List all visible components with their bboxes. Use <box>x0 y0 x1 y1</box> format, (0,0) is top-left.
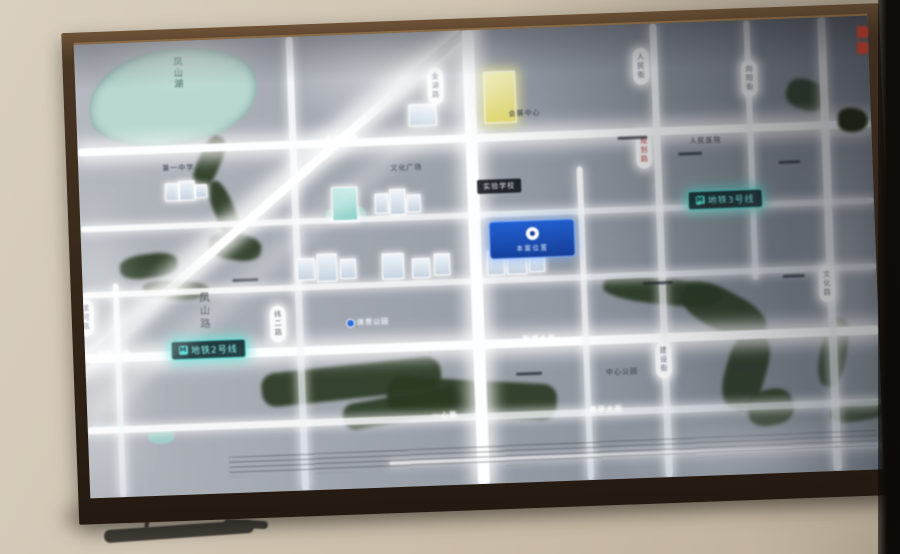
road-vertical-name-label: 凤山路 <box>195 292 211 332</box>
road-sign-pill: 建设街 <box>655 341 672 379</box>
road-sign-pill: 向阳街 <box>741 60 758 98</box>
text-smudge <box>516 372 542 376</box>
road-name-label: 新城大街 <box>523 333 557 344</box>
lake-shape <box>81 35 265 158</box>
building-icon <box>195 184 208 198</box>
text-smudge <box>678 152 702 156</box>
text-smudge <box>232 278 258 282</box>
poi-label-park: 体育公园 <box>346 316 389 328</box>
project-marker: 本案位置 <box>488 218 575 259</box>
poi-label: 商业中心 <box>734 362 766 373</box>
photo-of-illuminated-map-board: 金湖路 人民街 向阳街 规划路 纬二路 建设街 滨河路 文化路 M 地铁2号线 … <box>0 0 900 554</box>
poi-label: 中心公园 <box>606 366 638 377</box>
poi-label-dark-box: 实验学校 <box>477 178 521 194</box>
park-logo-icon <box>346 318 355 327</box>
building-icon <box>382 253 405 280</box>
road-sign-pill: 人民街 <box>632 48 649 86</box>
building-icon <box>317 253 338 282</box>
road-name-label: 一心路 <box>432 410 458 421</box>
building-icon <box>408 103 437 126</box>
poi-label: 文化广场 <box>390 162 422 173</box>
poi-label: 人民医院 <box>689 135 721 146</box>
bottom-pinstripes <box>229 430 877 477</box>
poi-label: 会展中心 <box>508 108 540 119</box>
road-name-label: 滨湖大路 <box>97 349 131 360</box>
building-icon <box>179 180 196 201</box>
building-icon <box>389 189 406 216</box>
park-label-text: 体育公园 <box>357 316 389 327</box>
photo-edge-dark-bar <box>878 0 900 554</box>
road-name-label: 金湖西路 <box>325 133 359 144</box>
poi-label: 第一中学 <box>162 162 194 173</box>
building-icon <box>165 183 180 202</box>
road-vertical <box>112 283 126 497</box>
project-marker-label: 本案位置 <box>516 241 548 252</box>
text-smudge <box>783 274 805 278</box>
building-icon <box>406 194 421 213</box>
road-vertical <box>743 20 759 280</box>
building-icon-glass <box>331 186 358 221</box>
road-sign-pill: 文化路 <box>818 265 835 303</box>
building-icon <box>374 193 389 213</box>
project-logo-icon <box>525 226 538 239</box>
map-content: 金湖路 人民街 向阳街 规划路 纬二路 建设街 滨河路 文化路 M 地铁2号线 … <box>74 16 884 499</box>
plant-silhouette <box>838 108 868 132</box>
metro-line-badge: M 地铁3号线 <box>687 189 762 211</box>
road-name-label: 南环大街 <box>589 404 623 415</box>
building-icon <box>297 258 316 281</box>
metro-line-badge: M 地铁2号线 <box>171 339 246 361</box>
road-sign-pill: 纬二路 <box>269 305 286 343</box>
building-icon <box>434 253 451 276</box>
red-overlay-mark <box>857 42 868 54</box>
lake-name-label: 凤山湖 <box>170 57 184 90</box>
text-smudge <box>778 160 800 164</box>
river-segment <box>119 251 180 282</box>
metro-line-label: 地铁2号线 <box>191 342 238 357</box>
road-sign-pill: 金湖路 <box>427 67 444 105</box>
metro-icon: M <box>179 346 188 355</box>
red-overlay-mark <box>857 26 868 38</box>
map-board-frame: 金湖路 人民街 向阳街 规划路 纬二路 建设街 滨河路 文化路 M 地铁2号线 … <box>61 3 896 525</box>
map-panel: 金湖路 人民街 向阳街 规划路 纬二路 建设街 滨河路 文化路 M 地铁2号线 … <box>74 14 884 499</box>
building-icon <box>340 259 357 280</box>
building-icon <box>412 258 431 279</box>
road-sign-pill: 滨河路 <box>77 299 94 337</box>
